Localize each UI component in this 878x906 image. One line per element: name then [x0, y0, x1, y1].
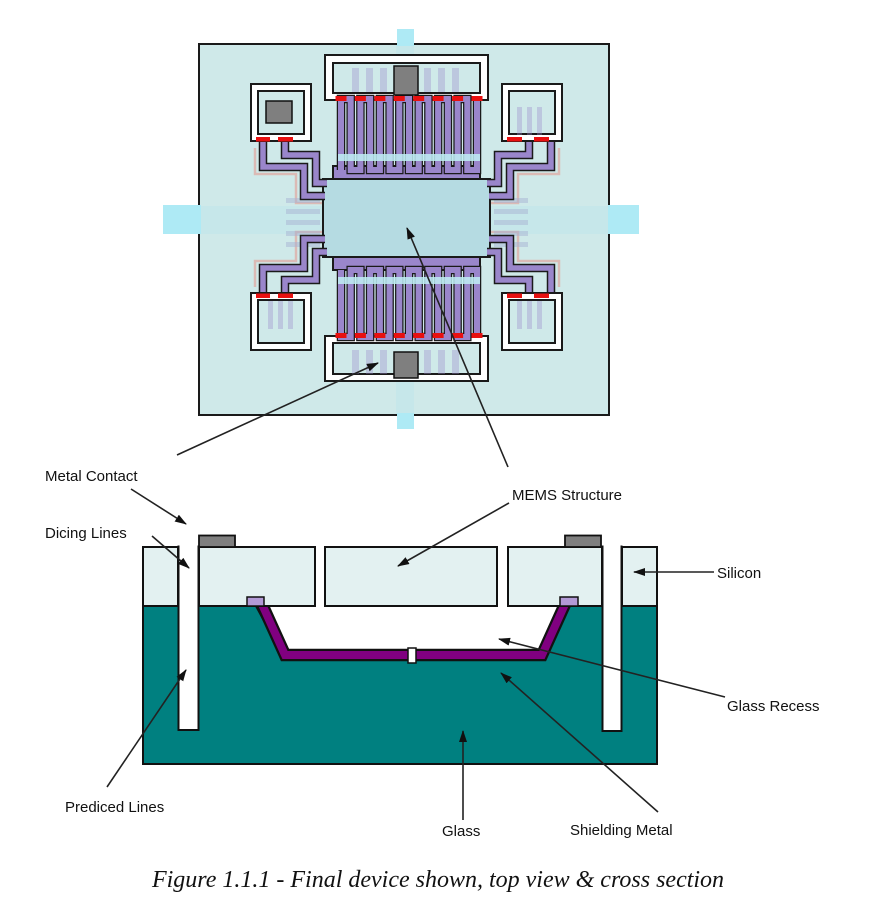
silicon-block-right: [508, 547, 602, 606]
metal-anchor-right: [560, 597, 578, 606]
label-glass: Glass: [442, 823, 480, 840]
silicon-layer: [143, 547, 657, 606]
label-shielding-metal: Shielding Metal: [570, 822, 673, 839]
proof-mass: [323, 179, 490, 257]
dicing-slot-left: [179, 546, 199, 731]
label-mems-structure: MEMS Structure: [512, 487, 622, 504]
metal-contact-cross-right: [565, 536, 601, 548]
shielding-metal-layer: [261, 602, 566, 655]
label-silicon: Silicon: [717, 565, 761, 582]
metal-contact-top: [394, 66, 418, 95]
metal-contact-top-left: [266, 101, 292, 123]
label-dicing-lines: Dicing Lines: [45, 525, 127, 542]
dicing-slot-right: [603, 546, 622, 732]
comb-band-top: [338, 154, 480, 161]
silicon-block-left-edge: [143, 547, 178, 606]
cross-section: [143, 536, 657, 765]
metal-anchor-left: [247, 597, 264, 606]
mems-device-diagram: Metal Contact Dicing Lines MEMS Structur…: [0, 0, 878, 906]
silicon-block-mems: [325, 547, 497, 606]
arrow-metal-contact-cross: [131, 489, 186, 524]
pad-top-left: [251, 84, 311, 141]
label-metal-contact: Metal Contact: [45, 468, 138, 485]
figure-caption: Figure 1.1.1 - Final device shown, top v…: [151, 867, 724, 893]
comb-band-bottom: [338, 277, 480, 284]
device-figure: Metal Contact Dicing Lines MEMS Structur…: [0, 0, 878, 906]
metal-contact-bottom: [394, 352, 418, 378]
label-prediced-lines: Prediced Lines: [65, 799, 164, 816]
glass-body: [143, 606, 657, 764]
top-view: [163, 29, 639, 429]
silicon-block-right-edge: [622, 547, 657, 606]
label-glass-recess: Glass Recess: [727, 698, 820, 715]
shielding-metal-gap: [408, 648, 416, 663]
metal-contact-cross-left: [199, 536, 235, 548]
